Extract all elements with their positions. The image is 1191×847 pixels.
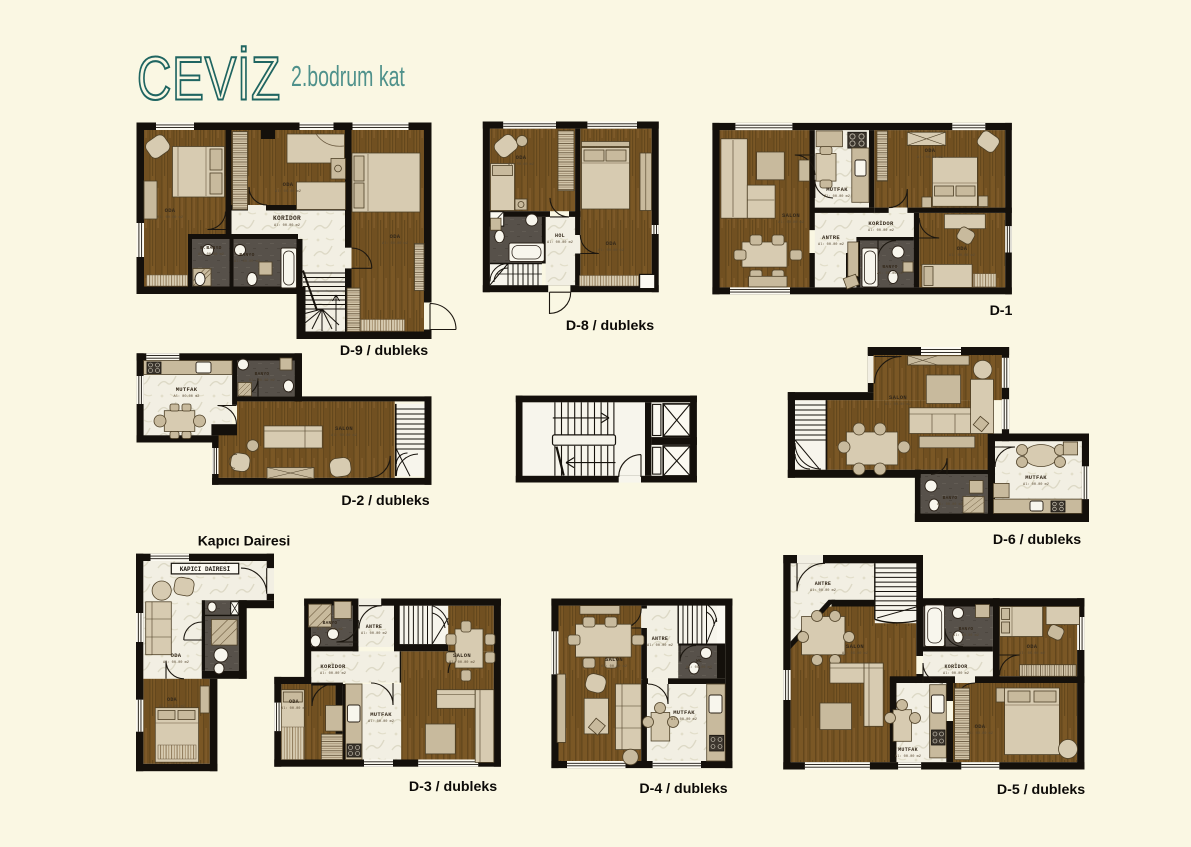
svg-text:Al: 00.00 m2: Al: 00.00 m2 — [967, 731, 993, 736]
svg-text:Al: 00.00 m2: Al: 00.00 m2 — [877, 271, 903, 276]
svg-text:MUTFAK: MUTFAK — [673, 709, 695, 716]
svg-text:ODA: ODA — [1027, 643, 1038, 650]
svg-text:KORİDOR: KORİDOR — [320, 663, 346, 670]
svg-text:Al: 00.00 m2: Al: 00.00 m2 — [331, 433, 357, 438]
svg-text:BANYO: BANYO — [882, 264, 897, 270]
svg-text:Al: 00.00 m2: Al: 00.00 m2 — [949, 253, 975, 258]
svg-text:Al: 00.00 m2: Al: 00.00 m2 — [159, 704, 185, 709]
svg-text:D-1: D-1 — [990, 303, 1013, 319]
svg-text:Al: 00.00 m2: Al: 00.00 m2 — [778, 220, 804, 225]
svg-text:D-2 / dubleks: D-2 / dubleks — [341, 493, 429, 509]
svg-text:KORİDOR: KORİDOR — [868, 220, 894, 227]
svg-text:KAPICI DAİRESİ: KAPICI DAİRESİ — [180, 566, 231, 573]
svg-text:Al: 00.00 m2: Al: 00.00 m2 — [868, 228, 894, 233]
svg-text:Al: 00.00 m2: Al: 00.00 m2 — [547, 240, 573, 245]
svg-text:BANYO: BANYO — [323, 621, 338, 626]
svg-text:Al: 00.00 m2: Al: 00.00 m2 — [598, 248, 624, 253]
svg-text:Al: 00.00 m2: Al: 00.00 m2 — [317, 627, 343, 632]
svg-text:Al: 00.00 m2: Al: 00.00 m2 — [885, 402, 911, 407]
svg-text:KORİDOR: KORİDOR — [273, 215, 301, 222]
svg-text:Al: 00.00 m2: Al: 00.00 m2 — [601, 664, 627, 669]
svg-text:BANYO: BANYO — [255, 372, 270, 377]
svg-text:Al: 00.00 m2: Al: 00.00 m2 — [686, 665, 712, 670]
svg-text:BANYO: BANYO — [959, 627, 974, 632]
svg-text:Al: 00.00 m2: Al: 00.00 m2 — [818, 242, 844, 247]
svg-text:ODA: ODA — [957, 245, 968, 252]
svg-text:Al: 00.00 m2: Al: 00.00 m2 — [382, 241, 408, 246]
svg-text:Al: 00.00 m2: Al: 00.00 m2 — [917, 155, 943, 160]
svg-text:ANTRE: ANTRE — [366, 624, 383, 630]
svg-text:MUTFAK: MUTFAK — [370, 711, 392, 718]
svg-text:Al: 00.00 m2: Al: 00.00 m2 — [943, 671, 969, 676]
svg-text:SALON: SALON — [782, 212, 800, 219]
svg-text:ODA: ODA — [171, 652, 182, 659]
svg-text:ANTRE: ANTRE — [822, 234, 840, 241]
svg-text:ODA: ODA — [516, 154, 527, 161]
svg-text:Al: 00.00 m2: Al: 00.00 m2 — [824, 194, 850, 199]
svg-text:WC: WC — [696, 659, 702, 664]
svg-text:Al: 00.00 m2: Al: 00.00 m2 — [810, 588, 836, 593]
svg-text:E.BANYO: E.BANYO — [200, 245, 221, 251]
svg-text:SALON: SALON — [846, 643, 864, 650]
svg-text:BANYO: BANYO — [239, 252, 254, 258]
svg-text:Al: 00.00 m2: Al: 00.00 m2 — [281, 706, 307, 711]
svg-text:Kapıcı Dairesi: Kapıcı Dairesi — [198, 533, 291, 549]
svg-text:Al: 00.00 m2: Al: 00.00 m2 — [953, 633, 979, 638]
svg-text:CEVİZ: CEVİZ — [137, 44, 281, 113]
svg-text:ODA: ODA — [925, 147, 936, 154]
svg-text:D-5 / dubleks: D-5 / dubleks — [997, 782, 1085, 798]
svg-text:MUTFAK: MUTFAK — [1025, 474, 1047, 481]
svg-text:MUTFAK: MUTFAK — [826, 186, 848, 193]
svg-text:ODA: ODA — [289, 699, 299, 705]
svg-text:Al: 00.00 m2: Al: 00.00 m2 — [157, 215, 183, 220]
svg-text:HOL: HOL — [555, 233, 565, 239]
svg-text:Al: 00.00 m2: Al: 00.00 m2 — [174, 394, 200, 399]
svg-text:ODA: ODA — [390, 233, 401, 240]
svg-text:Al: 00.00 m2: Al: 00.00 m2 — [508, 162, 534, 167]
svg-text:Al: 00.00 m2: Al: 00.00 m2 — [361, 631, 387, 636]
svg-text:D-9 / dubleks: D-9 / dubleks — [340, 343, 428, 359]
svg-text:Al: 00.00 m2: Al: 00.00 m2 — [249, 378, 275, 383]
svg-text:SALON: SALON — [605, 656, 623, 663]
svg-text:Al: 00.00 m2: Al: 00.00 m2 — [842, 651, 868, 656]
svg-text:SALON: SALON — [453, 652, 471, 659]
svg-text:Al: 00.00 m2: Al: 00.00 m2 — [671, 717, 697, 722]
svg-text:Al: 00.00 m2: Al: 00.00 m2 — [1019, 651, 1045, 656]
svg-text:Al: 00.00 m2: Al: 00.00 m2 — [368, 719, 394, 724]
svg-text:Al: 00.00 m2: Al: 00.00 m2 — [937, 502, 963, 507]
svg-text:D-6 / dubleks: D-6 / dubleks — [993, 532, 1081, 548]
svg-text:Al: 00.00 m2: Al: 00.00 m2 — [274, 223, 300, 228]
svg-text:Al: 00.00 m2: Al: 00.00 m2 — [275, 189, 301, 194]
svg-text:KORİDOR: KORİDOR — [944, 663, 967, 670]
svg-text:ANTRE: ANTRE — [652, 636, 669, 642]
svg-text:Al: 00.00 m2: Al: 00.00 m2 — [198, 252, 224, 257]
svg-text:Al: 00.00 m2: Al: 00.00 m2 — [163, 660, 189, 665]
svg-text:Al: 00.00 m2: Al: 00.00 m2 — [234, 259, 260, 264]
svg-text:ANTRE: ANTRE — [815, 581, 832, 587]
svg-text:Al: 00.00 m2: Al: 00.00 m2 — [895, 754, 921, 759]
svg-text:MUTFAK: MUTFAK — [898, 747, 918, 753]
svg-text:MUTFAK: MUTFAK — [176, 386, 198, 393]
svg-text:SALON: SALON — [335, 425, 353, 432]
svg-text:2.bodrum kat: 2.bodrum kat — [291, 61, 405, 93]
svg-text:ODA: ODA — [165, 207, 176, 214]
svg-text:ODA: ODA — [975, 723, 986, 730]
svg-text:Al: 00.00 m2: Al: 00.00 m2 — [449, 660, 475, 665]
svg-text:ODA: ODA — [167, 697, 177, 703]
svg-text:D-8 / dubleks: D-8 / dubleks — [566, 318, 654, 334]
svg-text:Al: 00.00 m2: Al: 00.00 m2 — [1023, 482, 1049, 487]
svg-text:D-3 / dubleks: D-3 / dubleks — [409, 779, 497, 795]
svg-text:BANYO: BANYO — [943, 496, 958, 501]
svg-text:SALON: SALON — [889, 394, 907, 401]
svg-text:Al: 00.00 m2: Al: 00.00 m2 — [320, 671, 346, 676]
svg-text:ODA: ODA — [606, 240, 617, 247]
svg-text:ODA: ODA — [283, 181, 294, 188]
svg-text:Al: 00.00 m2: Al: 00.00 m2 — [647, 643, 673, 648]
svg-text:D-4 / dubleks: D-4 / dubleks — [639, 781, 727, 797]
